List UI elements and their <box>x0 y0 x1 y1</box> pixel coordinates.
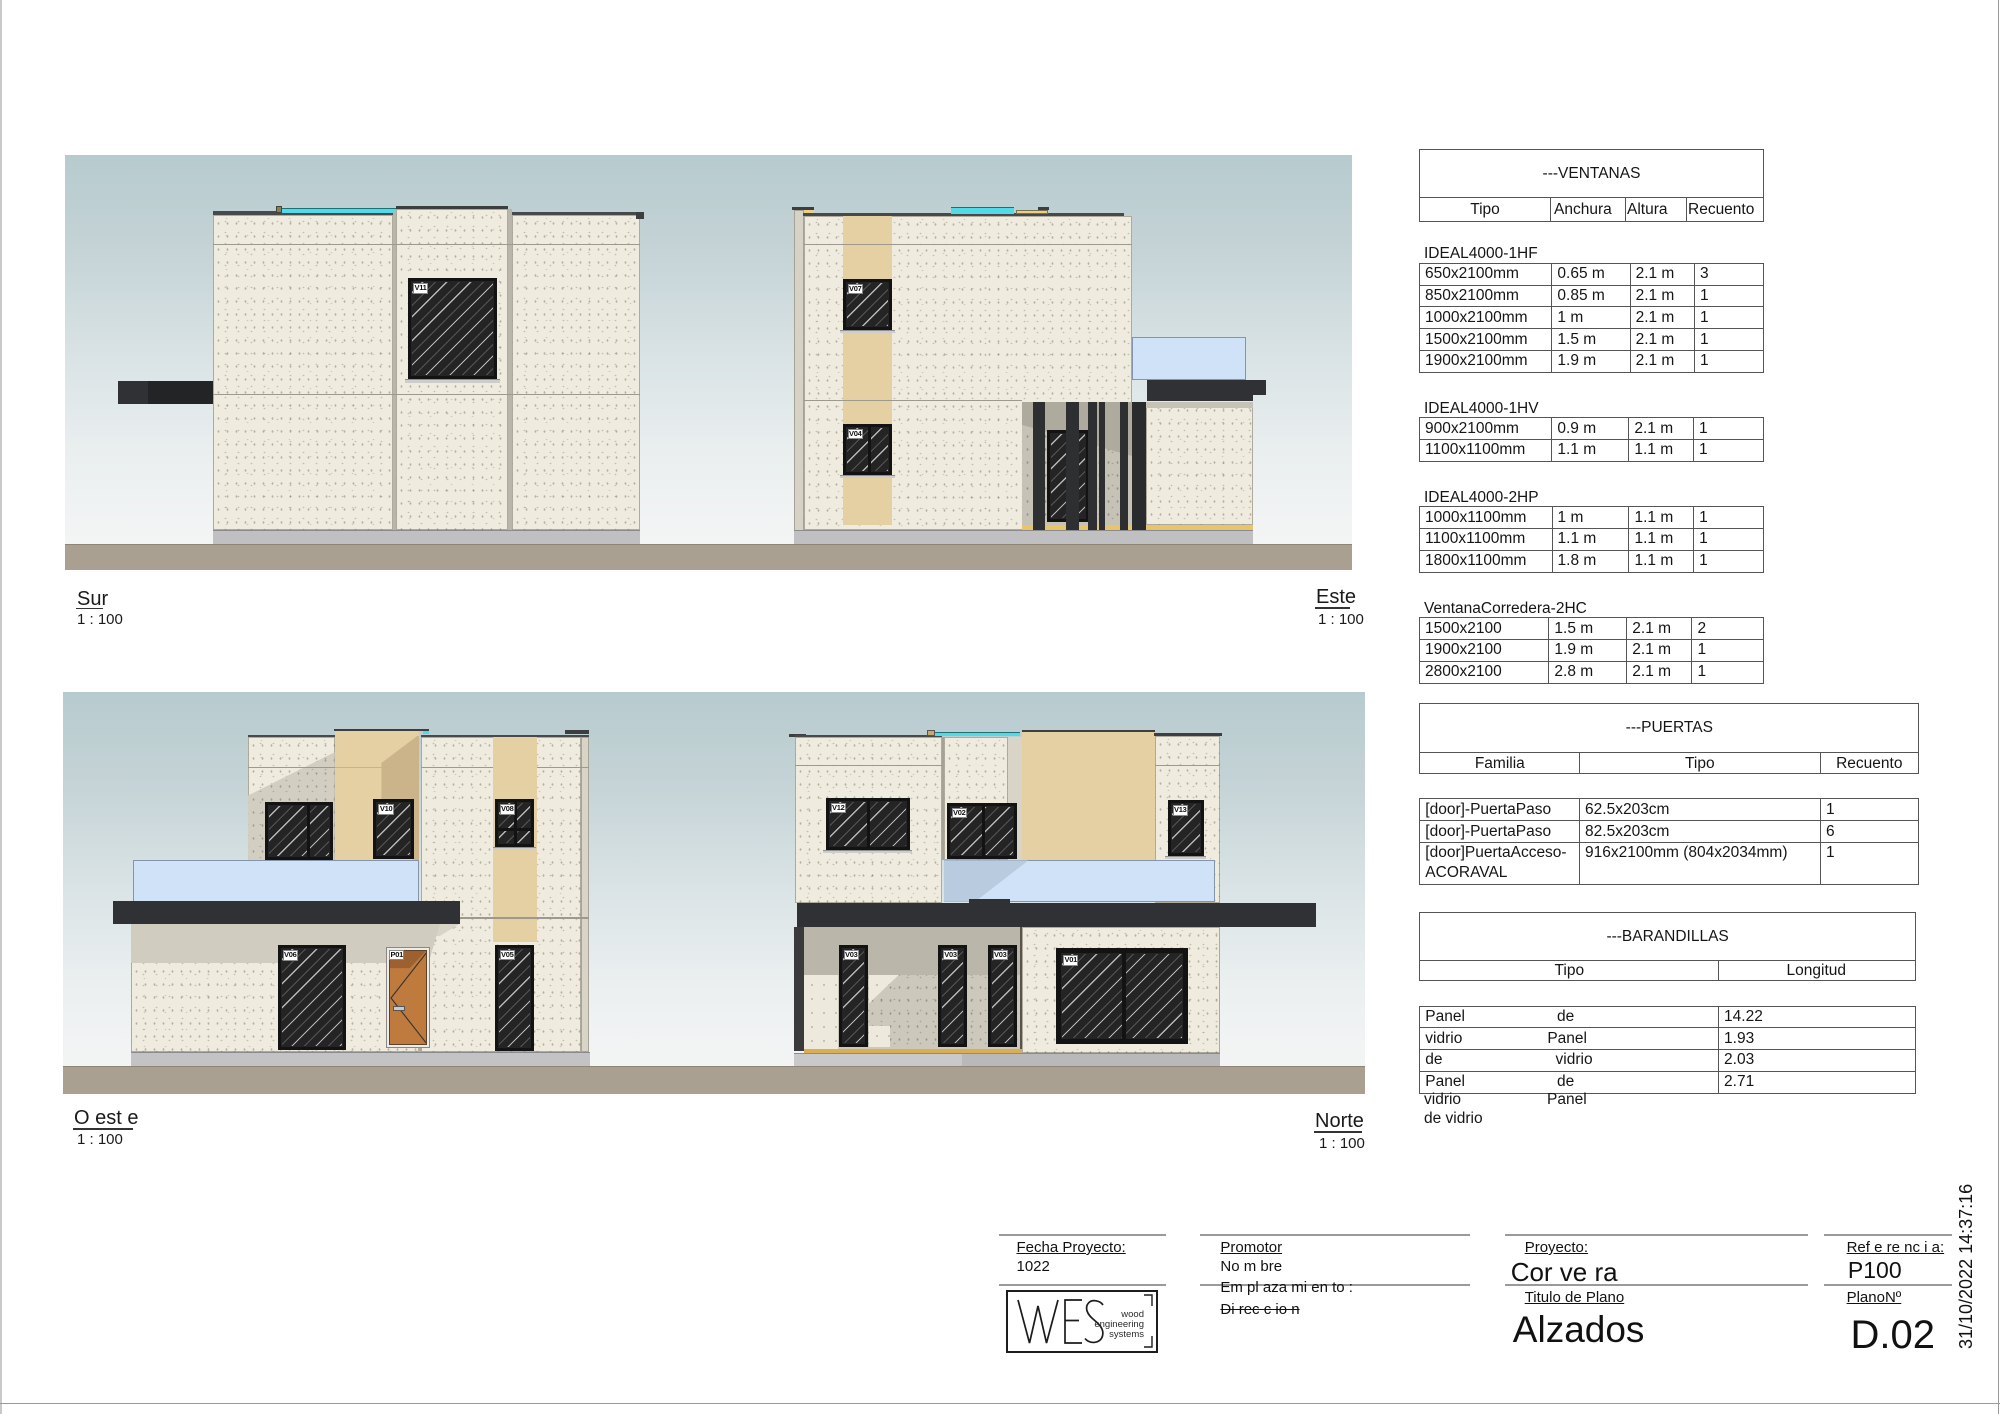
svg-text:systems: systems <box>1109 1329 1144 1340</box>
